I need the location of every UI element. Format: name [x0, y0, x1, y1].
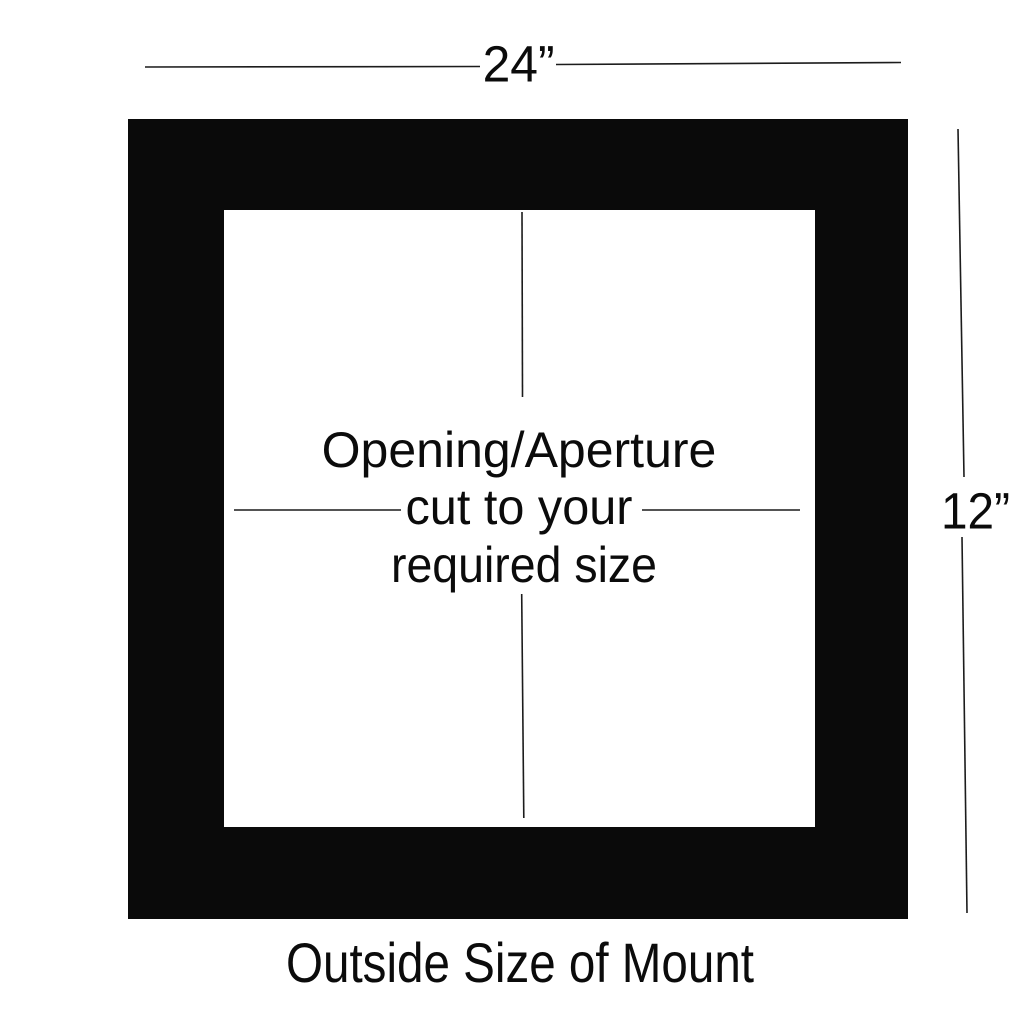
- svg-text:required size: required size: [391, 537, 657, 593]
- svg-text:12”: 12”: [941, 483, 1010, 540]
- svg-text:cut to your: cut to your: [406, 479, 633, 535]
- svg-text:Outside Size of Mount: Outside Size of Mount: [286, 931, 754, 994]
- svg-text:Opening/Aperture: Opening/Aperture: [322, 422, 717, 478]
- svg-text:24”: 24”: [483, 35, 555, 92]
